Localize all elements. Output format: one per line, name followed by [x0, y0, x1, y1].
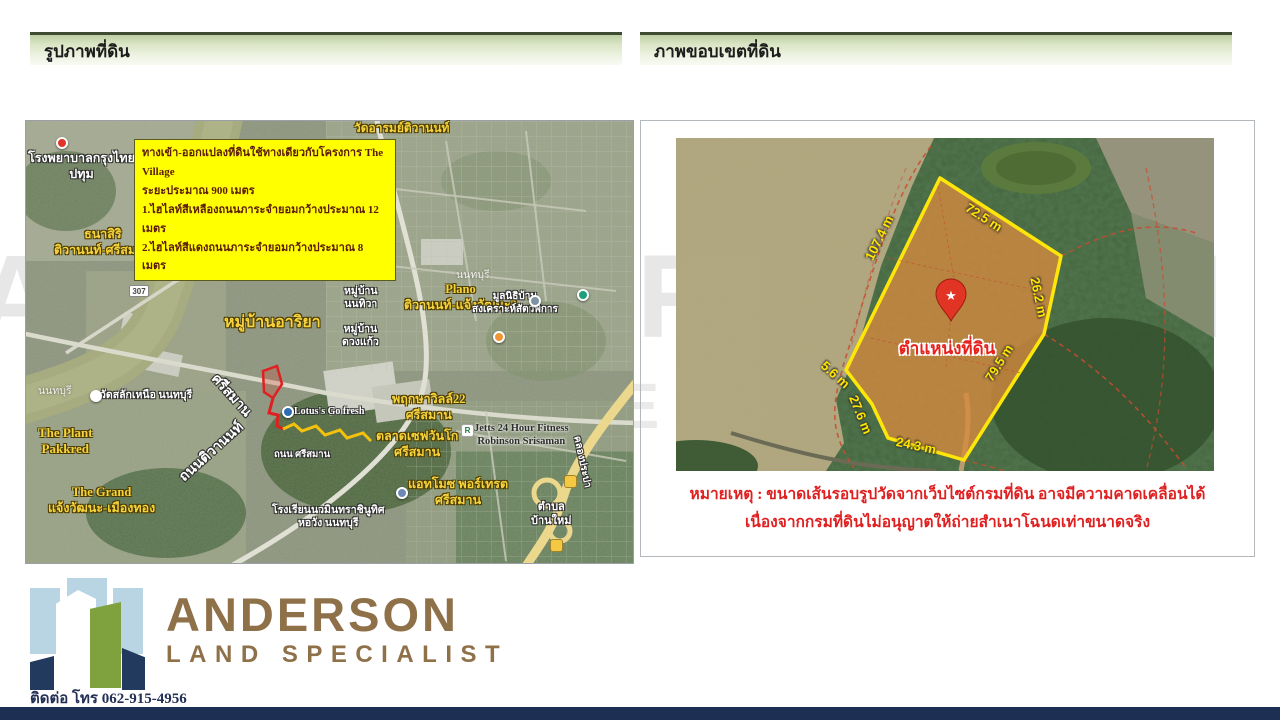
- map-marker-icon: [56, 137, 68, 149]
- boundary-art: ★: [676, 138, 1214, 471]
- map-marker-icon: [564, 475, 577, 488]
- brand-text-block: ANDERSON LAND SPECIALIST: [166, 590, 508, 669]
- access-note-line: 1.ไฮไลท์สีเหลืองถนนภาระจำยอมกว้างประมาณ …: [142, 201, 388, 239]
- map-marker-icon: 307: [129, 285, 149, 297]
- svg-text:★: ★: [945, 289, 957, 304]
- access-note-box: ทางเข้า-ออกแปลงที่ดินใช้ทางเดียวกับโครงก…: [134, 139, 396, 281]
- brand-name: ANDERSON: [166, 590, 508, 639]
- map-marker-icon: [529, 295, 541, 307]
- section-header-land-photo: รูปภาพที่ดิน: [30, 32, 622, 65]
- map-marker-icon: [550, 539, 563, 552]
- land-position-label: ตำแหน่งที่ดิน: [872, 335, 1022, 362]
- map-marker-icon: [493, 331, 505, 343]
- section-header-right-label: ภาพขอบเขตที่ดิน: [654, 42, 781, 61]
- access-note-line: ทางเข้า-ออกแปลงที่ดินใช้ทางเดียวกับโครงก…: [142, 144, 388, 182]
- map-marker-icon: [282, 406, 294, 418]
- anderson-logo-icon: [30, 578, 148, 690]
- map-marker-icon: [577, 289, 589, 301]
- flyer-page: ANDERSON LAND SPECIALIST รูปภาพที่ดิน ภา…: [0, 0, 1280, 720]
- land-boundary-panel: ★ 72.5 m107.4 m26.2 m79.5 m24.3 m27.6 m5…: [640, 120, 1255, 557]
- map-marker-icon: R: [461, 424, 474, 437]
- access-note-line: ระยะประมาณ 900 เมตร: [142, 182, 388, 201]
- logo-navy-block: [122, 648, 145, 690]
- map-marker-icon: [90, 390, 102, 402]
- boundary-note-line2: เนื่องจากกรมที่ดินไม่อนุญาตให้ถ่ายสำเนาโ…: [641, 509, 1254, 534]
- satellite-map-image: โรงพยาบาลกรุงไทย ปทุมวัดอารมย์ติวานนท์ธน…: [25, 120, 634, 564]
- section-header-land-boundary: ภาพขอบเขตที่ดิน: [640, 32, 1232, 65]
- access-note-line: 2.ไฮไลท์สีแดงถนนภาระจำยอมกว้างประมาณ 8 เ…: [142, 239, 388, 277]
- brand-tagline: LAND SPECIALIST: [166, 641, 508, 669]
- footer-bar: [0, 707, 1280, 720]
- logo-green-tower: [90, 602, 121, 688]
- logo-sky-panel: [30, 588, 60, 654]
- section-header-left-label: รูปภาพที่ดิน: [44, 42, 130, 61]
- boundary-note-line1: หมายเหตุ : ขนาดเส้นรอบรูปวัดจากเว็บไซต์ก…: [641, 481, 1254, 506]
- land-boundary-image: ★ 72.5 m107.4 m26.2 m79.5 m24.3 m27.6 m5…: [676, 138, 1214, 471]
- map-marker-icon: [396, 487, 408, 499]
- logo-navy-block: [30, 656, 54, 690]
